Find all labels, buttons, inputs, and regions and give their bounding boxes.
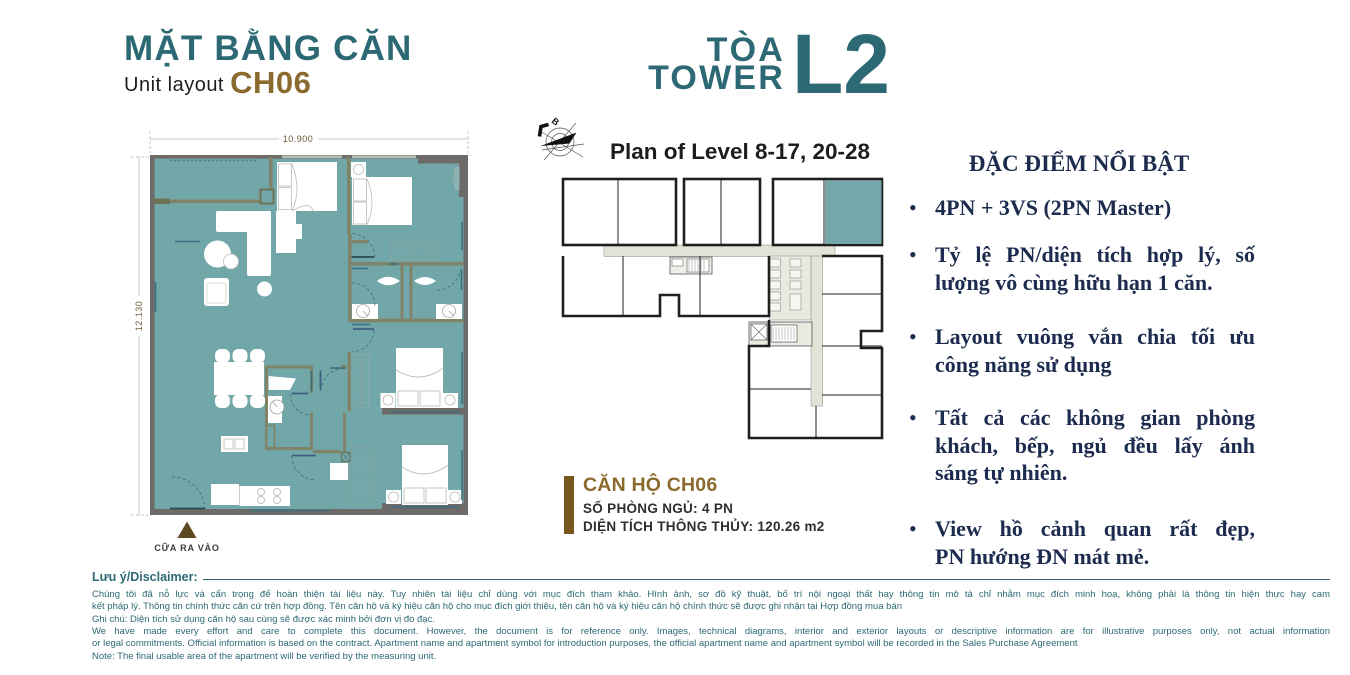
svg-text:12.130: 12.130: [134, 301, 144, 332]
svg-text:B: B: [550, 116, 562, 128]
svg-text:CỮA RA VÀO: CỮA RA VÀO: [154, 543, 219, 553]
svg-text:10.900: 10.900: [283, 134, 314, 144]
